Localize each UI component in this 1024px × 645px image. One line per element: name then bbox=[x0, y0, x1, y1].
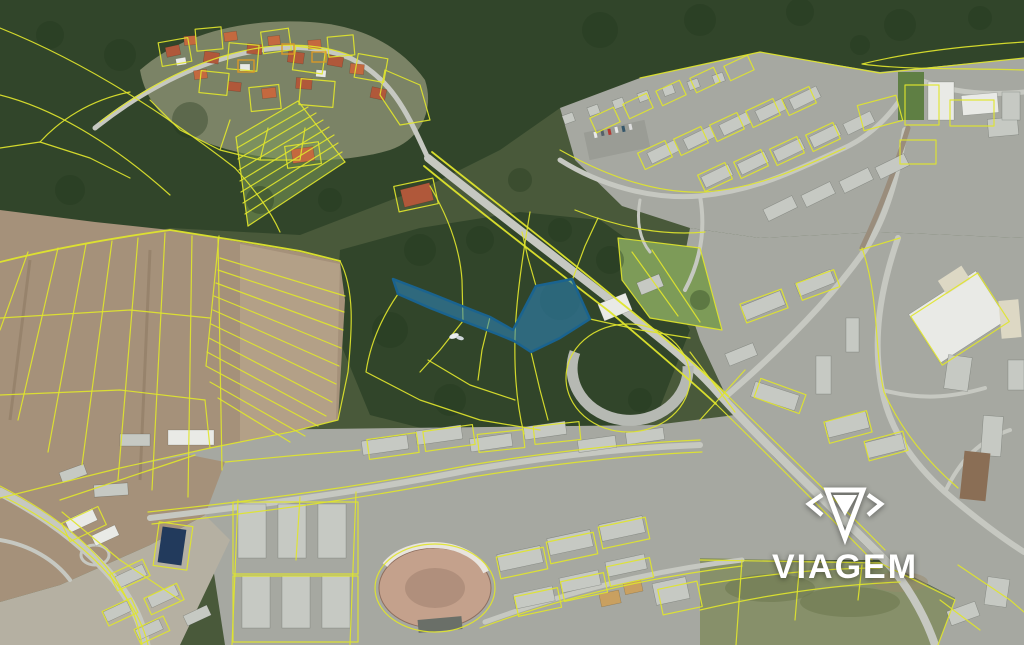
navy-roof-building bbox=[158, 527, 187, 566]
circular-complex-courtyard bbox=[405, 568, 465, 608]
brand-name-text: VIAGEM bbox=[772, 548, 918, 586]
field-west-light bbox=[240, 244, 340, 443]
map-canvas: VIAGEM bbox=[0, 0, 1024, 645]
brown-roof-building bbox=[960, 451, 991, 501]
sports-courts bbox=[898, 72, 924, 120]
aerial-cadastral-map[interactable]: VIAGEM bbox=[0, 0, 1024, 645]
field-southeast-scrub2 bbox=[800, 587, 900, 617]
